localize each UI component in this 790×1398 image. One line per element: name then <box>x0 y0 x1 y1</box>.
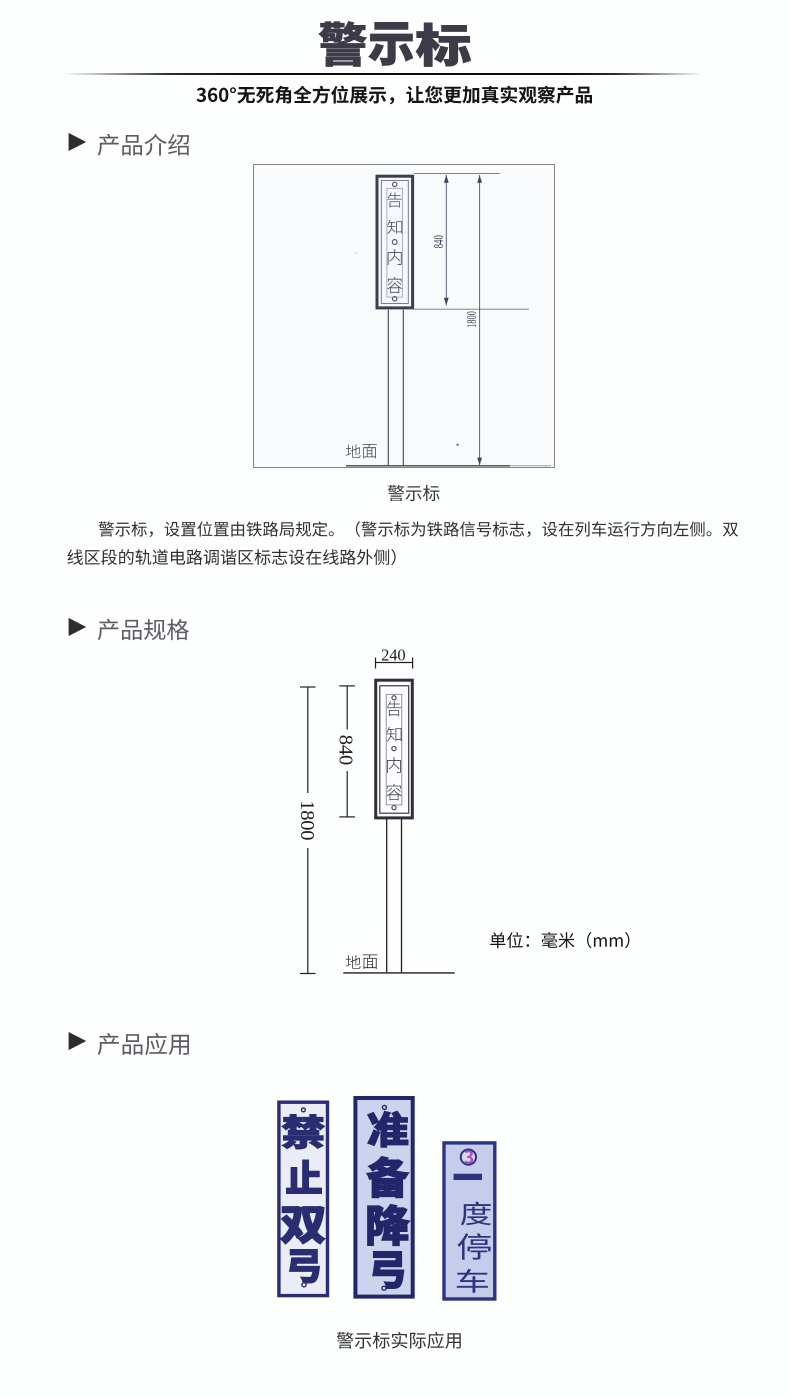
svg-text:1800: 1800 <box>465 311 480 328</box>
svg-text:240: 240 <box>381 645 406 664</box>
svg-text:840: 840 <box>335 735 357 766</box>
svg-text:840: 840 <box>432 235 447 248</box>
svg-text:1800: 1800 <box>296 800 318 840</box>
